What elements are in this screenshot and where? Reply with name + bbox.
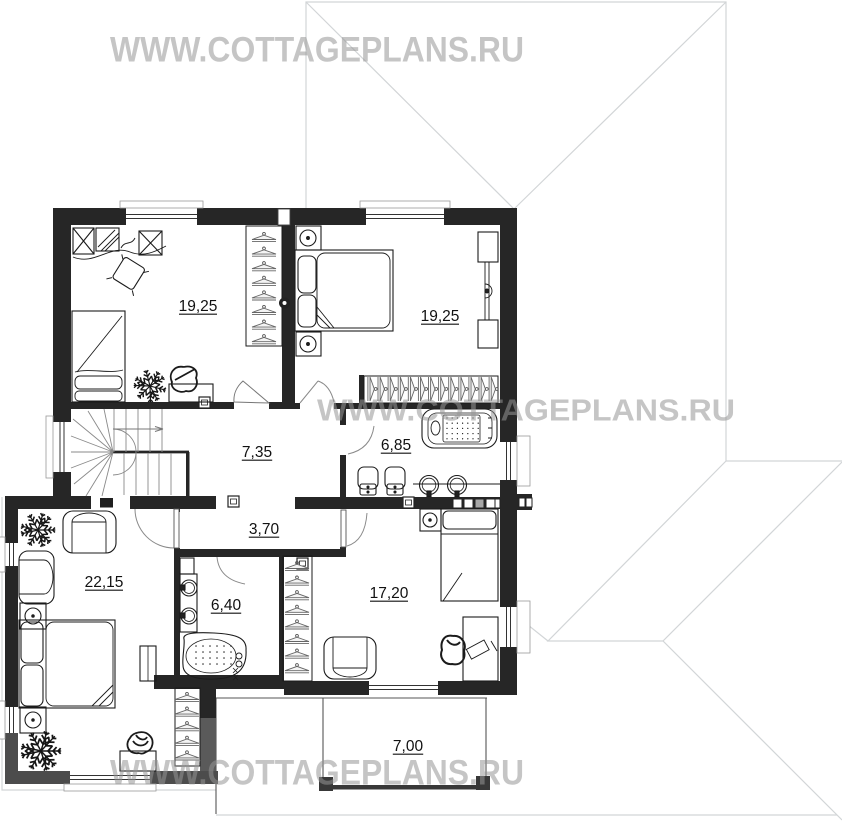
svg-text:17,20: 17,20 [370, 585, 409, 602]
svg-text:19,25: 19,25 [179, 298, 218, 315]
svg-text:7,00: 7,00 [393, 738, 424, 755]
svg-text:WWW.COTTAGEPLANS.RU: WWW.COTTAGEPLANS.RU [317, 393, 735, 428]
svg-text:22,15: 22,15 [85, 574, 124, 591]
svg-text:WWW.COTTAGEPLANS.RU: WWW.COTTAGEPLANS.RU [110, 31, 524, 70]
svg-text:6,85: 6,85 [381, 437, 411, 454]
svg-text:WWW.COTTAGEPLANS.RU: WWW.COTTAGEPLANS.RU [110, 754, 524, 793]
svg-text:6,40: 6,40 [211, 597, 242, 614]
svg-text:19,25: 19,25 [421, 308, 460, 325]
svg-text:3,70: 3,70 [249, 521, 280, 538]
svg-text:7,35: 7,35 [242, 444, 272, 461]
